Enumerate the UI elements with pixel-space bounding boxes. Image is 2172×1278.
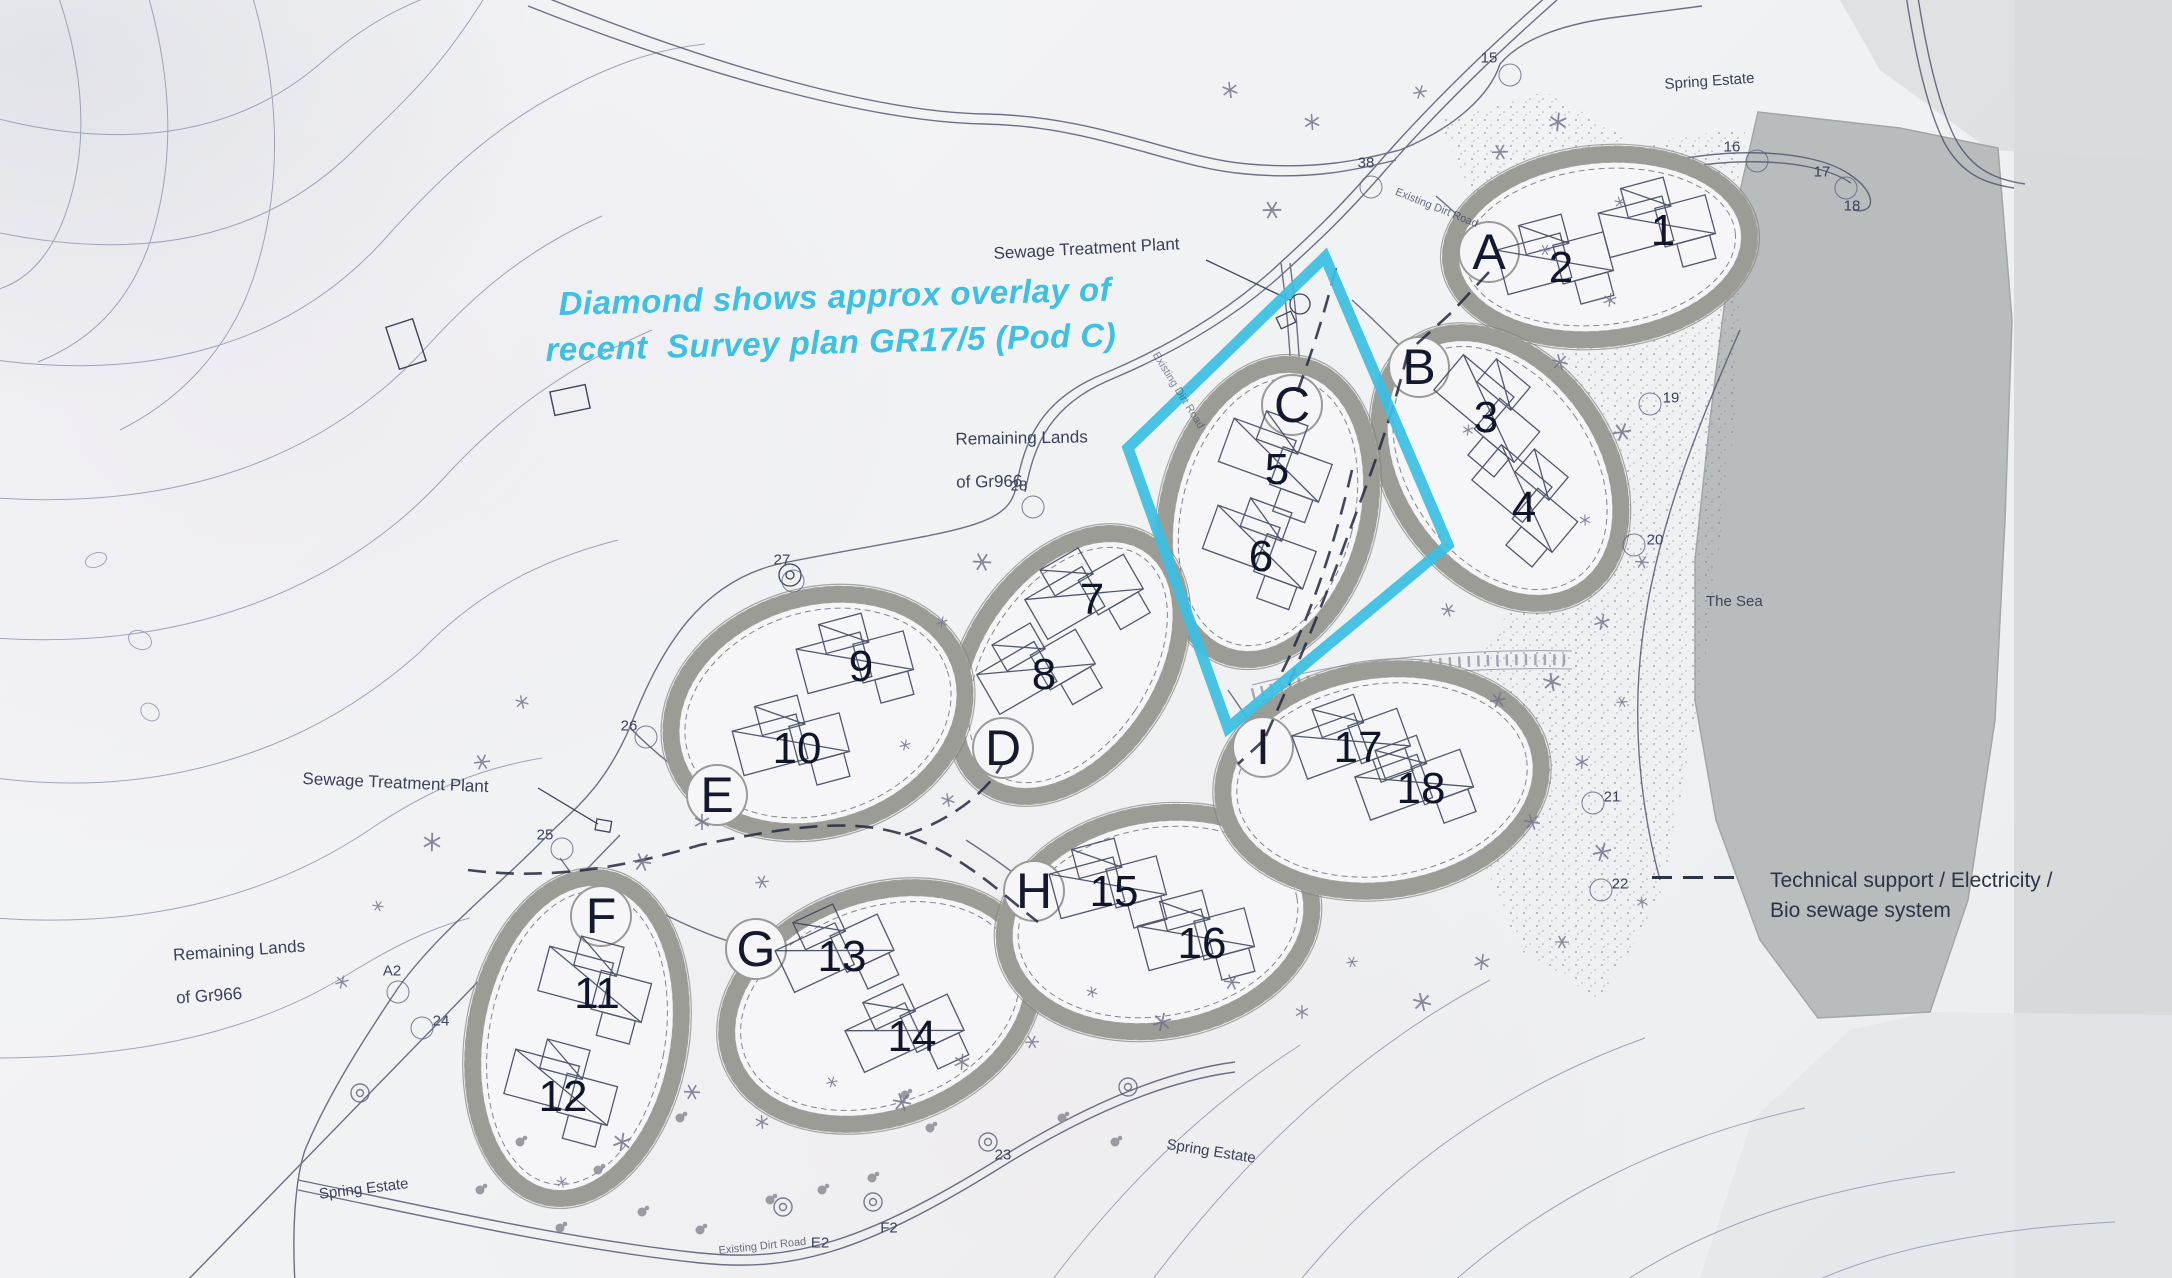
unit-number-3: 3 <box>1474 393 1498 443</box>
survey-marker-23: 23 <box>995 1147 1012 1164</box>
remaining-lands-mid-line1: Remaining Lands <box>955 428 1088 449</box>
pod-letter-H: H <box>1016 862 1052 920</box>
survey-marker-circle-24 <box>411 1017 434 1040</box>
survey-marker-A2: A2 <box>383 963 401 980</box>
remaining-lands-left-line2: of Gr966 <box>175 984 242 1008</box>
label-remaining-lands-mid: Remaining Lands of Gr966 <box>936 405 1089 514</box>
pod-letter-I: I <box>1256 718 1270 776</box>
unit-number-15: 15 <box>1090 867 1139 917</box>
legend-text: Technical support / Electricity / Bio se… <box>1770 866 2052 927</box>
survey-marker-circle-25 <box>551 838 574 861</box>
pod-letter-C: C <box>1274 376 1310 434</box>
survey-marker-circle-15 <box>1499 64 1522 87</box>
label-the-sea: The Sea <box>1706 593 1763 612</box>
unit-number-1: 1 <box>1651 206 1675 256</box>
legend-dashed-line-symbol <box>1652 876 1744 879</box>
legend: Technical support / Electricity / Bio se… <box>1652 866 2052 927</box>
unit-number-11: 11 <box>574 969 620 1019</box>
unit-number-17: 17 <box>1334 723 1383 773</box>
survey-marker-circle-21 <box>1582 792 1605 815</box>
unit-number-14: 14 <box>888 1012 937 1062</box>
survey-marker-18: 18 <box>1844 198 1861 215</box>
survey-marker-25: 25 <box>537 827 554 844</box>
pod-letter-B: B <box>1402 338 1435 396</box>
unit-number-12: 12 <box>539 1072 588 1122</box>
survey-marker-circle-20 <box>1623 534 1646 557</box>
survey-marker-circle-A2 <box>387 981 410 1004</box>
survey-marker-19: 19 <box>1663 390 1680 407</box>
unit-number-16: 16 <box>1178 919 1227 969</box>
unit-number-10: 10 <box>773 724 822 774</box>
survey-marker-28: 28 <box>1011 478 1028 495</box>
pod-letter-E: E <box>700 766 733 824</box>
unit-number-4: 4 <box>1512 483 1536 533</box>
unit-number-2: 2 <box>1549 243 1573 293</box>
unit-number-13: 13 <box>818 932 867 982</box>
photo-edges <box>1695 0 2172 1278</box>
site-plan-photo: Diamond shows approx overlay of recent S… <box>0 0 2172 1278</box>
survey-marker-circle-38 <box>1360 176 1383 199</box>
unit-number-9: 9 <box>849 642 873 692</box>
survey-marker-circle-26 <box>635 726 658 749</box>
survey-marker-circle-22 <box>1590 879 1613 902</box>
survey-marker-20: 20 <box>1647 532 1664 549</box>
unit-number-6: 6 <box>1249 532 1273 582</box>
survey-marker-17: 17 <box>1814 164 1831 181</box>
label-remaining-lands-left: Remaining Lands of Gr966 <box>152 914 310 1031</box>
legend-line1: Technical support / Electricity / <box>1770 869 2052 892</box>
unit-number-5: 5 <box>1265 445 1289 495</box>
survey-marker-circle-17 <box>1835 177 1858 200</box>
survey-marker-F2: F2 <box>880 1220 898 1237</box>
survey-marker-27: 27 <box>774 552 791 569</box>
survey-marker-circle-16 <box>1746 150 1769 173</box>
survey-marker-15: 15 <box>1481 50 1498 67</box>
legend-line2: Bio sewage system <box>1770 899 1951 922</box>
survey-marker-22: 22 <box>1612 876 1629 893</box>
survey-marker-21: 21 <box>1604 789 1621 806</box>
unit-number-8: 8 <box>1032 650 1056 700</box>
survey-marker-circle-28 <box>1022 496 1045 519</box>
survey-marker-circle-27 <box>782 570 805 593</box>
survey-marker-24: 24 <box>433 1013 450 1030</box>
survey-marker-38: 38 <box>1358 155 1375 172</box>
pod-letter-G: G <box>737 920 776 978</box>
survey-marker-circle-19 <box>1639 393 1662 416</box>
pod-letter-D: D <box>985 719 1021 777</box>
pod-letter-F: F <box>586 887 617 945</box>
pod-letter-A: A <box>1472 223 1505 281</box>
remaining-lands-left-line1: Remaining Lands <box>172 937 305 965</box>
unit-number-18: 18 <box>1397 764 1446 814</box>
unit-number-7: 7 <box>1080 575 1104 625</box>
survey-marker-16: 16 <box>1724 139 1741 156</box>
survey-marker-E2: E2 <box>811 1235 829 1252</box>
